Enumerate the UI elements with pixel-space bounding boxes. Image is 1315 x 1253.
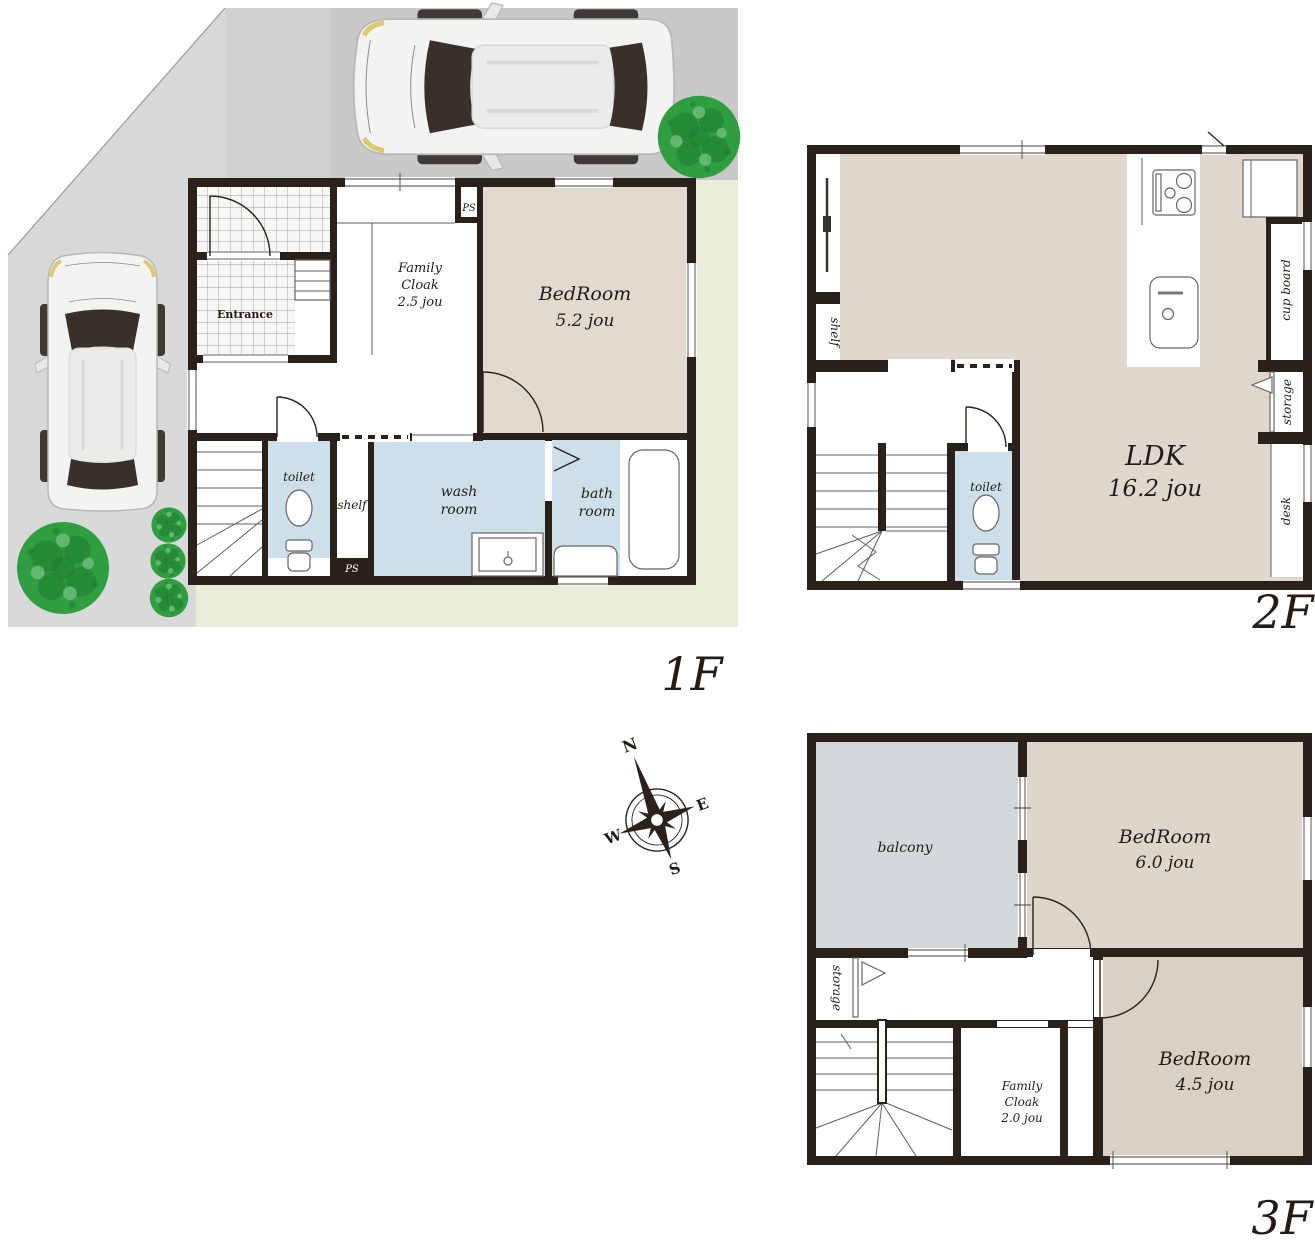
floor-plan-page: Entrance Family Cloak 2.5 jou BedRoom 5.…	[0, 0, 1315, 1253]
window-2f-right-desk	[1302, 445, 1313, 502]
window-bottom-bath	[558, 575, 608, 586]
bush-icon-2	[150, 543, 185, 578]
room-label-entrance: Entrance	[217, 308, 273, 321]
window-3f-right-bed6	[1302, 817, 1313, 880]
room-label-cupboard: cup board	[1279, 259, 1293, 321]
bathtub	[629, 450, 679, 569]
label-ps-bottom: PS	[344, 564, 359, 575]
room-label-storage-2f: storage	[1280, 379, 1294, 425]
window-2f-bottom	[963, 580, 1020, 591]
floor2-plan: LDK 16.2 jou toilet shelf cup board stor…	[806, 132, 1313, 591]
floor-title-1f: 1F	[661, 647, 724, 701]
refrigerator	[1243, 160, 1297, 217]
compass-e: E	[694, 794, 711, 815]
room-label-ldk-size: 16.2 jou	[1108, 476, 1202, 502]
driveway-lane	[226, 8, 330, 180]
label-ps-top: PS	[461, 203, 476, 214]
room-label-toilet-1f: toilet	[283, 470, 315, 484]
floor-plan-image: Entrance Family Cloak 2.5 jou BedRoom 5.…	[0, 0, 1315, 1253]
room-label-wash-1: wash	[441, 484, 478, 500]
room-label-family-cloak-2: Cloak	[401, 278, 439, 293]
window-2f-left	[806, 383, 817, 427]
room-label-cloak3f-size: 2.0 jou	[1000, 1111, 1043, 1125]
compass-s: S	[667, 859, 683, 880]
shoe-cabinet	[295, 260, 330, 300]
tree-icon-top-right	[658, 96, 740, 178]
window-left-corridor	[187, 370, 198, 430]
bath-counter	[554, 546, 617, 576]
floor1-plan: Entrance Family Cloak 2.5 jou BedRoom 5.…	[187, 173, 697, 586]
bush-icon-1	[151, 507, 186, 542]
room-label-shelf-2f: shelf	[828, 317, 842, 349]
car-icon-top	[354, 3, 675, 170]
room-label-bedroom-1f: BedRoom	[538, 283, 632, 305]
room-label-bedroom-1f-size: 5.2 jou	[556, 311, 615, 331]
compass-rose: N E S W	[574, 718, 729, 897]
room-label-desk: desk	[1279, 497, 1293, 525]
room-label-bedroom6-size: 6.0 jou	[1136, 853, 1195, 873]
room-label-bedroom45-size: 4.5 jou	[1175, 1075, 1235, 1095]
floor3-plan: balcony BedRoom 6.0 jou BedRoom 4.5 jou …	[807, 733, 1313, 1169]
room-label-bath-2: room	[579, 504, 616, 520]
room-label-family-cloak-size: 2.5 jou	[396, 295, 442, 310]
room-label-balcony: balcony	[878, 840, 934, 856]
room-label-toilet-2f: toilet	[970, 480, 1002, 494]
window-right-bedroom	[686, 263, 697, 357]
vanity-sink	[472, 533, 543, 576]
window-2f-top-kitchen	[1202, 132, 1226, 155]
floor-title-2f: 2F	[1251, 585, 1315, 639]
room-label-shelf-1f: shelf	[337, 498, 369, 512]
car-icon-left	[35, 253, 170, 512]
window-3f-right-bed45	[1302, 1007, 1313, 1067]
kitchen-island	[1127, 154, 1200, 367]
window-2f-right-cupboard	[1302, 222, 1313, 270]
room-label-family-cloak-1: Family	[397, 261, 443, 276]
room-label-bath-1: bath	[581, 486, 613, 502]
bedroom-1f-floor	[483, 187, 687, 433]
room-label-bedroom6: BedRoom	[1118, 826, 1212, 848]
room-label-bedroom45: BedRoom	[1158, 1048, 1252, 1070]
bush-icon-3	[150, 579, 188, 617]
tree-icon-bottom-left	[17, 522, 109, 614]
compass-w: W	[601, 825, 625, 848]
room-label-cloak3f-2: Cloak	[1005, 1095, 1040, 1109]
window-top-bedroom	[555, 177, 613, 188]
floor-title-3f: 3F	[1251, 1191, 1314, 1245]
room-label-storage-3f: storage	[830, 965, 844, 1011]
room-label-cloak3f-1: Family	[1001, 1079, 1043, 1093]
storage-door-3f	[853, 958, 858, 1017]
room-label-wash-2: room	[441, 502, 478, 518]
compass-n: N	[620, 734, 640, 757]
room-label-ldk: LDK	[1124, 441, 1187, 472]
